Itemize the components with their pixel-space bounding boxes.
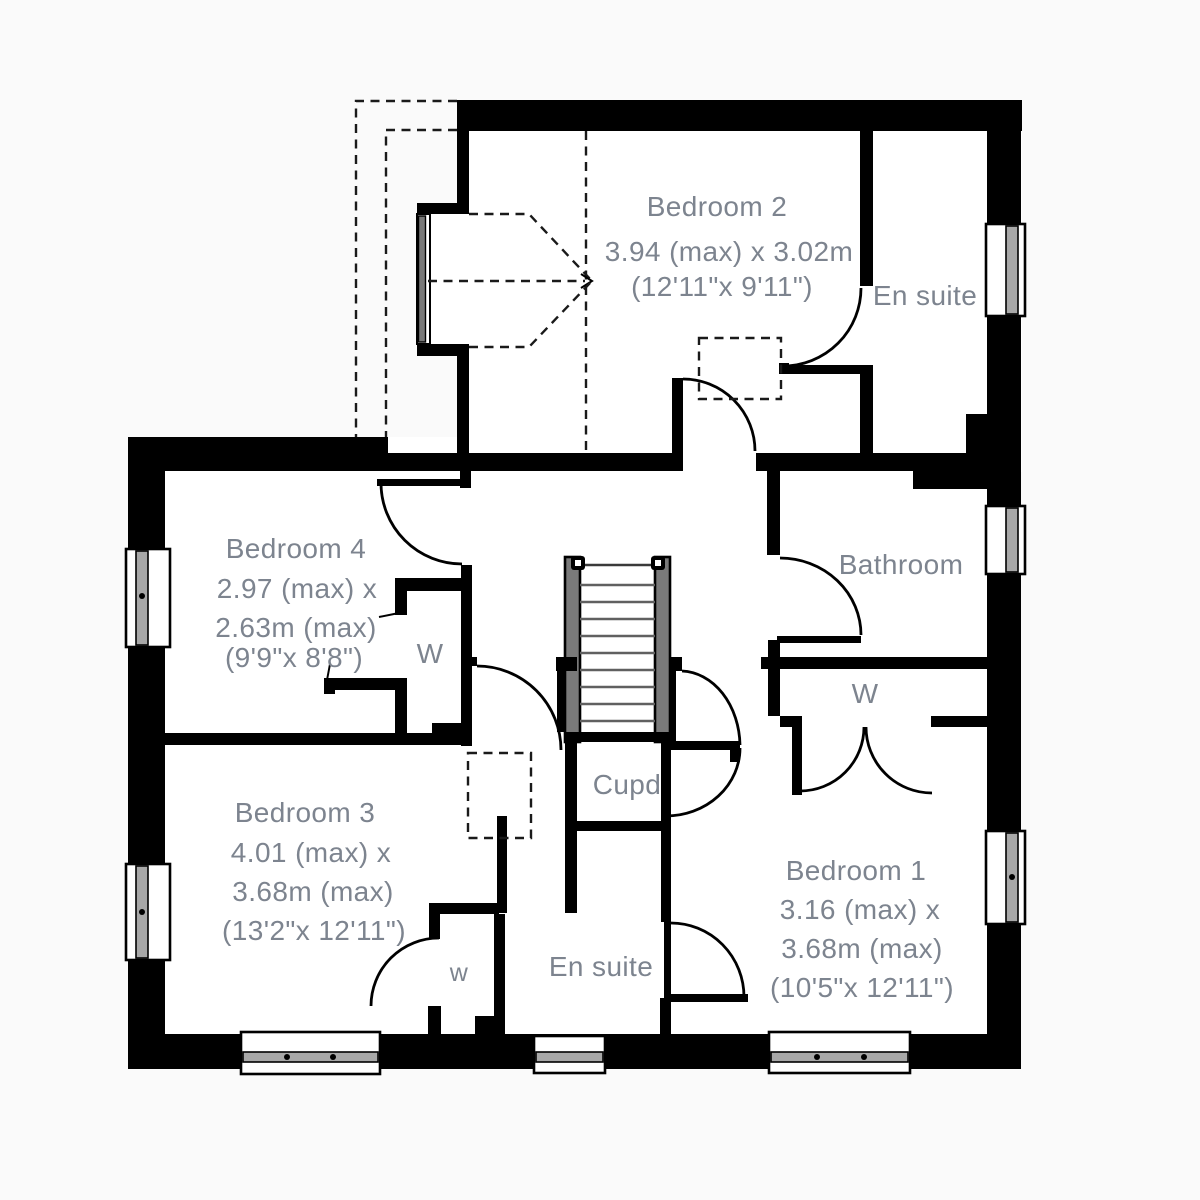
svg-text:Cupd: Cupd [593, 769, 662, 800]
svg-text:Bedroom 4: Bedroom 4 [226, 533, 367, 564]
svg-text:W: W [852, 678, 879, 709]
svg-text:(12'11"x 9'11"): (12'11"x 9'11") [631, 271, 813, 302]
svg-text:En suite: En suite [549, 951, 653, 982]
svg-text:4.01 (max) x: 4.01 (max) x [231, 837, 391, 868]
svg-text:3.68m (max): 3.68m (max) [781, 933, 943, 964]
svg-text:W: W [417, 638, 444, 669]
svg-text:3.68m (max): 3.68m (max) [232, 876, 394, 907]
svg-text:(10'5"x 12'11"): (10'5"x 12'11") [770, 972, 954, 1003]
svg-text:3.16 (max) x: 3.16 (max) x [780, 894, 940, 925]
svg-text:Bedroom 3: Bedroom 3 [235, 797, 376, 828]
svg-text:w: w [449, 959, 469, 987]
svg-text:Bedroom 2: Bedroom 2 [647, 191, 788, 222]
svg-text:2.63m (max): 2.63m (max) [215, 612, 377, 643]
svg-text:3.94 (max) x 3.02m: 3.94 (max) x 3.02m [605, 236, 853, 267]
svg-text:En suite: En suite [873, 280, 977, 311]
svg-text:2.97 (max) x: 2.97 (max) x [217, 573, 377, 604]
svg-text:Bathroom: Bathroom [839, 549, 964, 580]
svg-text:(13'2"x 12'11"): (13'2"x 12'11") [222, 915, 406, 946]
svg-text:Bedroom 1: Bedroom 1 [786, 855, 927, 886]
svg-text:(9'9"x 8'8"): (9'9"x 8'8") [225, 642, 363, 673]
